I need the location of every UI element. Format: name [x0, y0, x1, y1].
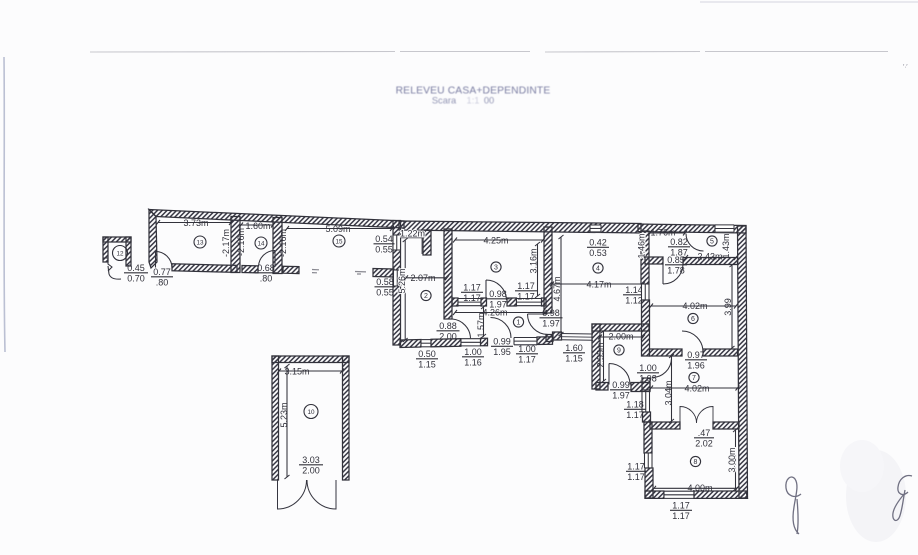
- svg-text:1.60: 1.60: [565, 343, 583, 353]
- svg-text:5: 5: [710, 239, 714, 246]
- svg-text:2.00m: 2.00m: [608, 332, 633, 342]
- svg-text:1.57m: 1.57m: [476, 312, 486, 337]
- svg-text:9: 9: [617, 348, 621, 355]
- svg-text:1.96: 1.96: [687, 361, 705, 371]
- svg-text:′·′: ′·′: [903, 64, 908, 71]
- svg-text:4: 4: [596, 266, 600, 273]
- svg-text:0.45: 0.45: [127, 263, 145, 273]
- svg-text:3.73m: 3.73m: [183, 218, 208, 228]
- svg-text:1.17: 1.17: [627, 462, 645, 472]
- svg-text:1.00: 1.00: [464, 347, 482, 357]
- svg-text:4.26m: 4.26m: [482, 308, 507, 318]
- svg-text:2.55m: 2.55m: [596, 342, 606, 367]
- svg-text:2: 2: [424, 293, 428, 300]
- svg-text:4.02m: 4.02m: [684, 384, 709, 394]
- svg-text:1.17: 1.17: [463, 293, 481, 303]
- svg-text:0.58: 0.58: [376, 277, 394, 287]
- svg-text:0.88: 0.88: [439, 321, 457, 331]
- svg-text:3.00m: 3.00m: [727, 447, 737, 472]
- svg-text:0.68: 0.68: [257, 263, 275, 273]
- svg-text:1.18: 1.18: [626, 400, 644, 410]
- svg-text:00: 00: [484, 96, 494, 106]
- svg-text:4.00m: 4.00m: [687, 483, 712, 493]
- svg-text:4.17m: 4.17m: [586, 280, 611, 290]
- svg-text:12: 12: [116, 251, 124, 258]
- svg-text:0.99: 0.99: [612, 380, 630, 390]
- svg-text:1.22m: 1.22m: [400, 228, 425, 238]
- svg-text:10: 10: [307, 409, 315, 416]
- svg-text:0.55: 0.55: [375, 245, 393, 255]
- svg-text:2.43m: 2.43m: [697, 252, 722, 262]
- svg-text:1.17: 1.17: [517, 292, 535, 302]
- svg-text:0.99: 0.99: [493, 337, 511, 347]
- svg-text:4.02m: 4.02m: [682, 301, 707, 311]
- svg-text:15: 15: [335, 239, 343, 246]
- svg-text:.80: .80: [260, 274, 273, 284]
- svg-text:0.42: 0.42: [589, 238, 607, 248]
- svg-text:1.15: 1.15: [565, 354, 583, 364]
- svg-text:3: 3: [494, 265, 498, 272]
- svg-text:1.17: 1.17: [626, 410, 644, 420]
- svg-text:1.17: 1.17: [463, 283, 481, 293]
- svg-text:4.25m: 4.25m: [483, 236, 508, 246]
- svg-text:1.00: 1.00: [518, 344, 536, 354]
- svg-text:3.99: 3.99: [723, 298, 733, 316]
- svg-text:5.23m: 5.23m: [279, 402, 289, 427]
- svg-text:1.14: 1.14: [625, 285, 643, 295]
- svg-text:1.15: 1.15: [418, 360, 436, 370]
- svg-text:8: 8: [694, 459, 698, 466]
- svg-text:.47: .47: [698, 428, 711, 438]
- svg-text:0.77: 0.77: [153, 267, 171, 277]
- svg-text:13: 13: [196, 240, 204, 247]
- svg-text:0.85: 0.85: [667, 255, 685, 265]
- svg-text:5.26m: 5.26m: [397, 268, 407, 293]
- svg-text:2.02: 2.02: [695, 439, 713, 449]
- svg-text:1.97: 1.97: [542, 319, 560, 329]
- svg-text:1.16: 1.16: [464, 358, 482, 368]
- svg-text:0.54: 0.54: [375, 234, 393, 244]
- svg-text:1.97: 1.97: [612, 391, 630, 401]
- svg-text:3.16m: 3.16m: [529, 248, 539, 273]
- svg-text:0.55: 0.55: [376, 288, 394, 298]
- svg-text:-2.16m: -2.16m: [236, 228, 246, 256]
- svg-text:4.67m: 4.67m: [552, 276, 562, 301]
- svg-text:1.78: 1.78: [667, 266, 685, 276]
- svg-text:1.17: 1.17: [518, 355, 536, 365]
- svg-text:3.15m: 3.15m: [284, 367, 309, 377]
- svg-text:3.04m: 3.04m: [664, 380, 674, 405]
- svg-text:1.00: 1.00: [639, 363, 657, 373]
- svg-text:0.50: 0.50: [418, 349, 436, 359]
- svg-text:1.95: 1.95: [493, 347, 511, 357]
- svg-text:-2.16m: -2.16m: [278, 229, 288, 257]
- svg-text:1.46m: 1.46m: [637, 233, 647, 258]
- svg-text:1: 1: [517, 320, 521, 327]
- svg-text:1.17: 1.17: [627, 472, 645, 482]
- svg-text:1.12: 1.12: [625, 296, 643, 306]
- svg-text:1.76m: 1.76m: [650, 228, 675, 238]
- svg-text:0.97: 0.97: [687, 350, 705, 360]
- svg-text:2.00: 2.00: [302, 466, 320, 476]
- svg-text:2.07m: 2.07m: [410, 273, 435, 283]
- svg-text:.80: .80: [156, 278, 169, 288]
- svg-text:0.82: 0.82: [670, 237, 688, 247]
- svg-text:7: 7: [692, 375, 696, 382]
- svg-text:-2.17m: -2.17m: [221, 229, 231, 257]
- svg-text:Scara: Scara: [432, 96, 457, 106]
- svg-text:1.17: 1.17: [672, 501, 690, 511]
- svg-text:0.70: 0.70: [127, 274, 145, 284]
- svg-text:6: 6: [691, 316, 695, 323]
- svg-text:0.53: 0.53: [589, 248, 607, 258]
- svg-text:5.09m: 5.09m: [325, 224, 350, 234]
- svg-text:1.60m: 1.60m: [245, 221, 270, 231]
- svg-text:3.03: 3.03: [302, 455, 320, 465]
- svg-text:0.98: 0.98: [489, 289, 507, 299]
- svg-text:1.17: 1.17: [517, 281, 535, 291]
- svg-text:1.98: 1.98: [639, 374, 657, 384]
- svg-text:14: 14: [257, 241, 265, 248]
- svg-text:1.17: 1.17: [672, 511, 690, 521]
- svg-text:1:1: 1:1: [467, 96, 480, 106]
- svg-text:0.98: 0.98: [542, 308, 560, 318]
